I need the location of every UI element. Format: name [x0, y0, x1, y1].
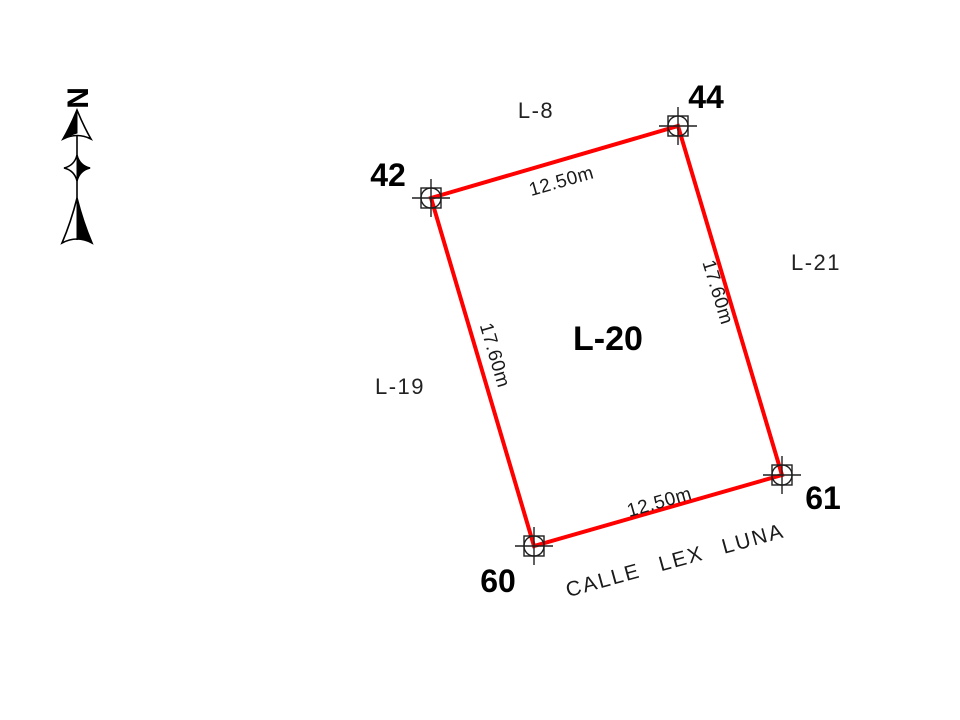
corner-point-label-42: 42 [370, 157, 406, 193]
north-arrow: N [61, 87, 94, 243]
adjacent-lot-label-east: L-21 [791, 250, 841, 275]
dimension-label-left: 17.60m [475, 321, 514, 391]
survey-plan-drawing: N [0, 0, 960, 720]
survey-plan-canvas: N [0, 0, 960, 720]
dimension-label-right: 17.60m [698, 258, 737, 328]
corner-point-label-61: 61 [805, 480, 841, 516]
survey-marker-42 [412, 179, 450, 217]
corner-point-label-60: 60 [480, 563, 516, 599]
street-name-label: CALLE LEX LUNA [563, 519, 787, 602]
north-label: N [61, 87, 94, 109]
survey-marker-61 [763, 456, 801, 494]
adjacent-lot-label-west: L-19 [375, 374, 425, 399]
lot-id-label: L-20 [573, 320, 643, 358]
corner-point-label-44: 44 [688, 79, 724, 115]
dimension-label-bottom: 12.50m [625, 483, 695, 521]
survey-marker-60 [515, 527, 553, 565]
adjacent-lot-label-north: L-8 [518, 98, 554, 123]
